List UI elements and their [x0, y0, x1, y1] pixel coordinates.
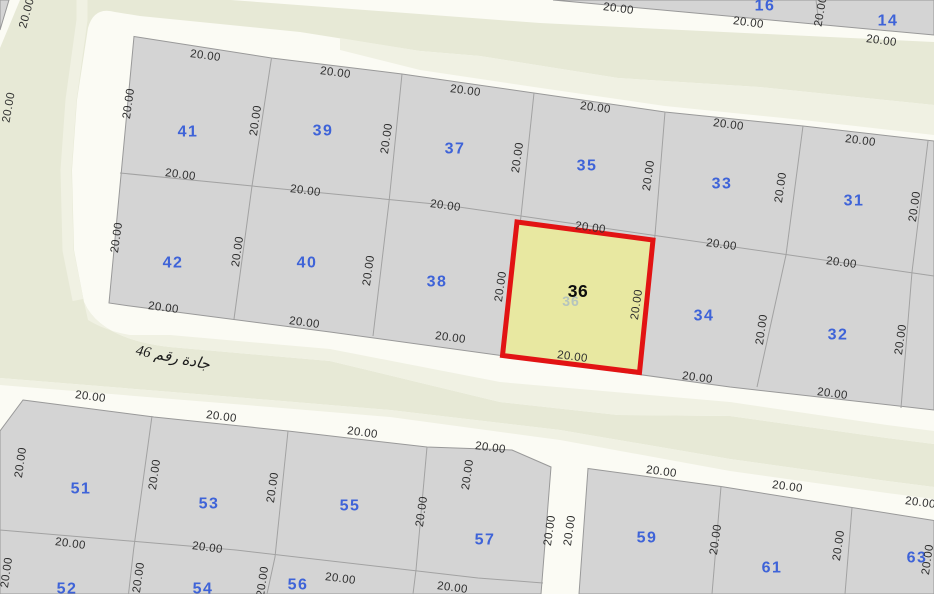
svg-text:38: 38 — [427, 274, 448, 291]
svg-text:14: 14 — [878, 13, 899, 30]
svg-text:54: 54 — [193, 581, 214, 594]
svg-text:16: 16 — [755, 0, 776, 15]
svg-text:33: 33 — [712, 176, 733, 193]
svg-text:55: 55 — [340, 498, 361, 515]
svg-text:40: 40 — [297, 255, 318, 272]
svg-text:32: 32 — [828, 327, 849, 344]
svg-text:42: 42 — [163, 255, 184, 272]
svg-text:52: 52 — [57, 581, 78, 594]
svg-text:36: 36 — [568, 281, 588, 301]
svg-text:56: 56 — [288, 577, 309, 594]
svg-text:61: 61 — [762, 560, 783, 577]
svg-text:53: 53 — [199, 496, 220, 513]
svg-text:37: 37 — [445, 141, 466, 158]
svg-text:35: 35 — [577, 158, 598, 175]
svg-text:31: 31 — [844, 193, 865, 210]
svg-text:41: 41 — [178, 124, 199, 141]
svg-text:57: 57 — [475, 532, 496, 549]
svg-text:59: 59 — [637, 530, 658, 547]
svg-text:34: 34 — [694, 308, 715, 325]
svg-text:39: 39 — [313, 123, 334, 140]
svg-text:51: 51 — [71, 481, 92, 498]
